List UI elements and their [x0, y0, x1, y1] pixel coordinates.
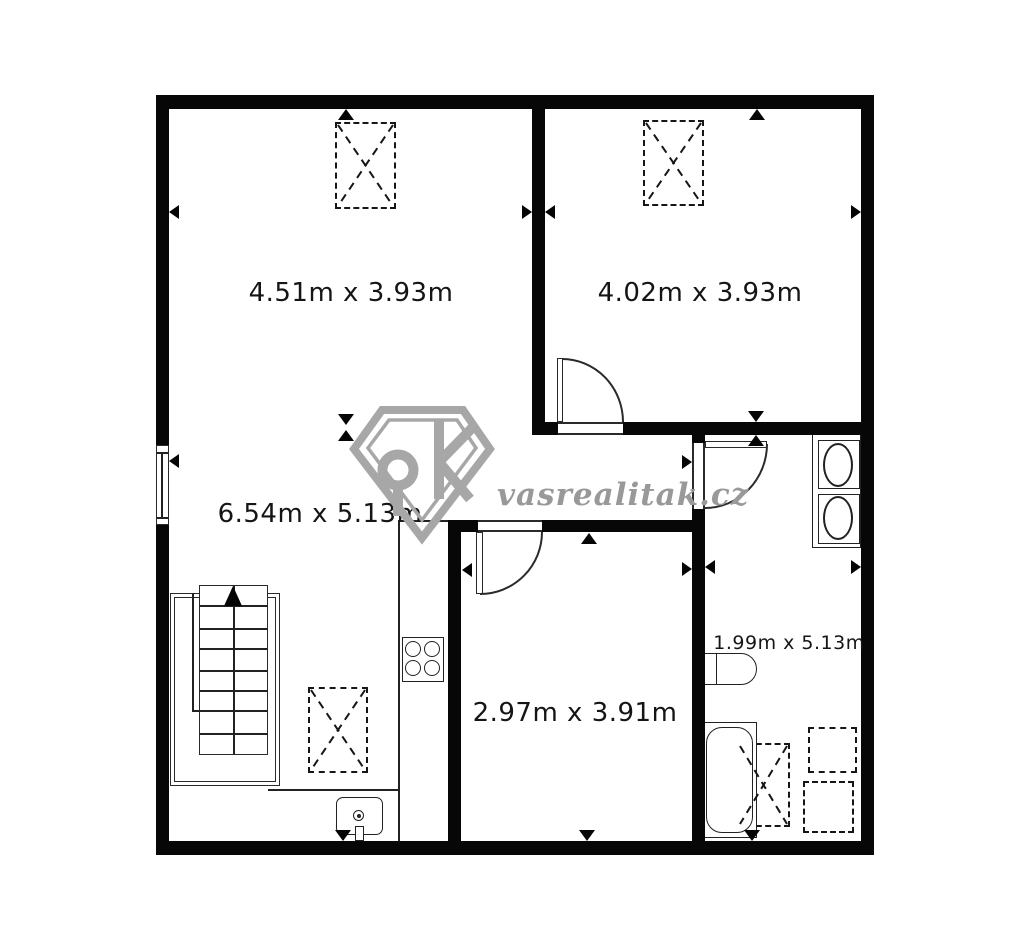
- wardrobe-dashed-box: [643, 120, 704, 206]
- measure-arrow-icon: [579, 830, 595, 841]
- room-dimension-label: 1.99m x 5.13m: [713, 632, 864, 654]
- door-opening: [478, 520, 542, 532]
- wardrobe-dashed-box: [335, 122, 396, 209]
- toilet-bowl: [716, 653, 757, 685]
- stairs-up-arrow-icon: [224, 586, 242, 606]
- measure-arrow-icon: [748, 435, 764, 446]
- measure-arrow-icon: [748, 411, 764, 422]
- stair-rail-line: [192, 593, 194, 711]
- bathtub-inner: [706, 727, 753, 833]
- measure-arrow-icon: [744, 830, 760, 841]
- window: [156, 445, 169, 525]
- sink-drain-dot: [357, 814, 361, 818]
- measure-arrow-icon: [749, 109, 765, 120]
- sink-faucet: [355, 826, 364, 841]
- measure-arrow-icon: [338, 109, 354, 120]
- measure-arrow-icon: [682, 455, 692, 469]
- measure-arrow-icon: [335, 830, 351, 841]
- wall-divider-top-rooms: [532, 95, 545, 435]
- brand-watermark-text: vasrealitak.cz: [497, 477, 749, 513]
- washbasin: [823, 496, 853, 540]
- appliance-dashed-box: [808, 727, 857, 773]
- room-dimension-label: 4.02m x 3.93m: [598, 278, 803, 308]
- measure-arrow-icon: [851, 560, 861, 574]
- appliance-dashed-box: [803, 781, 854, 833]
- measure-arrow-icon: [462, 563, 472, 577]
- stove-burner-icon: [424, 660, 440, 676]
- measure-arrow-icon: [851, 205, 861, 219]
- floor-plan: 4.51m x 3.93m 4.02m x 3.93m 6.54m x 5.13…: [0, 0, 1024, 951]
- measure-arrow-icon: [169, 205, 179, 219]
- measure-arrow-icon: [682, 562, 692, 576]
- room-dimension-label: 6.54m x 5.13m: [218, 499, 423, 529]
- room-dimension-label: 2.97m x 3.91m: [473, 698, 678, 728]
- measure-arrow-icon: [581, 533, 597, 544]
- stove-burner-icon: [405, 660, 421, 676]
- window-line: [161, 452, 163, 518]
- washbasin: [823, 443, 853, 487]
- measure-arrow-icon: [338, 430, 354, 441]
- stair-center-line: [233, 585, 235, 755]
- door-swing-arc: [562, 359, 623, 422]
- wardrobe-dashed-box: [308, 687, 368, 773]
- window-line: [157, 452, 168, 454]
- wall-mid-room-left: [448, 520, 461, 855]
- measure-arrow-icon: [522, 205, 532, 219]
- stair-rail-line: [192, 710, 200, 712]
- door-swing-arc: [480, 532, 542, 594]
- counter-edge: [398, 520, 400, 842]
- door-opening: [558, 422, 623, 435]
- room-dimension-label: 4.51m x 3.93m: [249, 278, 454, 308]
- wall-right: [861, 95, 874, 855]
- door-leaf: [476, 532, 483, 594]
- stove-burner-icon: [405, 641, 421, 657]
- measure-arrow-icon: [169, 454, 179, 468]
- counter-edge: [268, 789, 399, 791]
- measure-arrow-icon: [705, 560, 715, 574]
- window-line: [157, 517, 168, 519]
- stove-burner-icon: [424, 641, 440, 657]
- wall-bottom: [156, 841, 874, 855]
- door-leaf: [557, 358, 563, 422]
- measure-arrow-icon: [338, 414, 354, 425]
- measure-arrow-icon: [545, 205, 555, 219]
- wall-top: [156, 95, 874, 109]
